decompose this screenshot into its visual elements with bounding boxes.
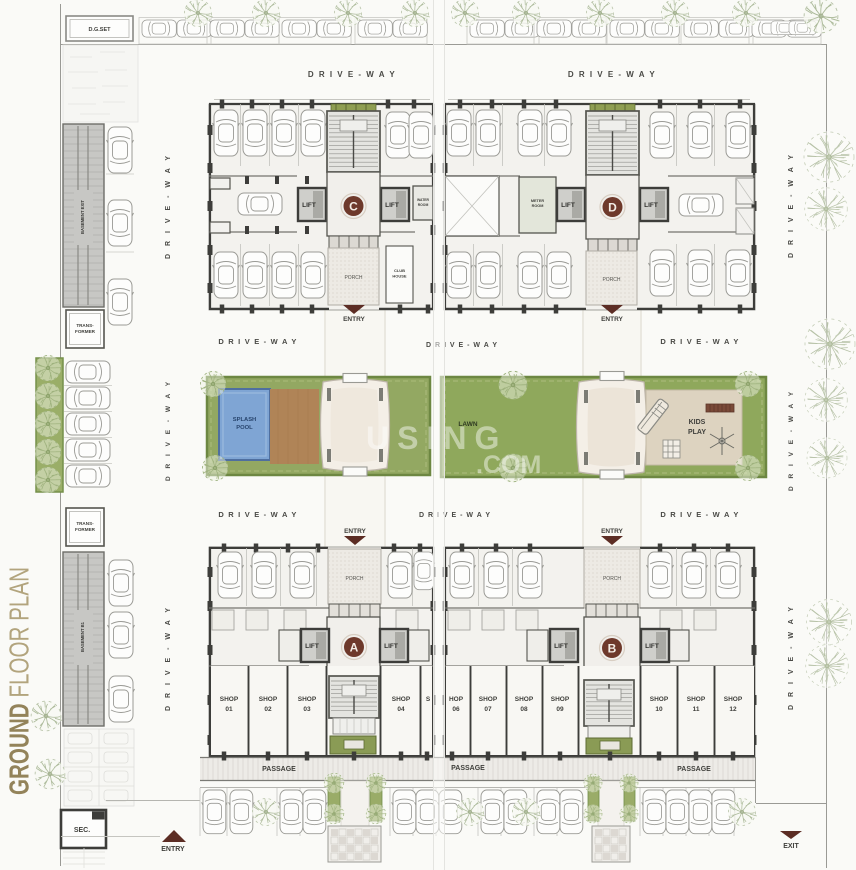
svg-text:D R I V E - W A Y: D R I V E - W A Y <box>788 389 795 491</box>
svg-text:ENTRY: ENTRY <box>161 846 185 853</box>
svg-text:SHOP: SHOP <box>298 696 317 703</box>
svg-text:D R I V E - W A Y: D R I V E - W A Y <box>788 152 795 258</box>
svg-text:BASEMENT EXIT: BASEMENT EXIT <box>80 200 85 234</box>
svg-text:HOP: HOP <box>449 696 464 703</box>
svg-text:D R I V E - W A Y: D R I V E - W A Y <box>165 605 172 711</box>
svg-text:KIDS: KIDS <box>689 419 706 426</box>
svg-text:SHOP: SHOP <box>551 696 570 703</box>
svg-text:ROOM: ROOM <box>532 204 544 208</box>
svg-text:PORCH: PORCH <box>603 576 621 582</box>
svg-text:D R I V E - W A Y: D R I V E - W A Y <box>660 510 739 519</box>
svg-text:SEC.: SEC. <box>74 827 90 834</box>
svg-text:PORCH: PORCH <box>602 277 620 283</box>
svg-text:D.G.SET: D.G.SET <box>88 27 111 33</box>
svg-text:A: A <box>350 640 359 654</box>
svg-text:EXIT: EXIT <box>783 843 799 850</box>
svg-text:SHOP: SHOP <box>687 696 706 703</box>
svg-text:SHOP: SHOP <box>479 696 498 703</box>
svg-text:PORCH: PORCH <box>344 275 362 281</box>
svg-text:PLAY: PLAY <box>688 429 706 436</box>
svg-text:ROOM: ROOM <box>418 203 429 207</box>
svg-text:FORMER: FORMER <box>75 527 96 532</box>
svg-text:06: 06 <box>452 706 460 713</box>
svg-text:07: 07 <box>484 706 492 713</box>
svg-text:ENTRY: ENTRY <box>601 316 623 323</box>
svg-text:D R I V E - W A Y: D R I V E - W A Y <box>308 70 396 79</box>
svg-text:BASEMENT B1: BASEMENT B1 <box>80 621 85 652</box>
svg-text:PASSAGE: PASSAGE <box>451 765 485 772</box>
svg-text:PASSAGE: PASSAGE <box>677 766 711 773</box>
svg-text:SHOP: SHOP <box>515 696 534 703</box>
svg-text:D R I V E - W A Y: D R I V E - W A Y <box>568 70 656 79</box>
svg-text:D R I V E - W A Y: D R I V E - W A Y <box>165 153 172 259</box>
svg-text:D R I V E - W A Y: D R I V E - W A Y <box>419 512 491 519</box>
svg-text:ENTRY: ENTRY <box>344 528 366 535</box>
svg-text:02: 02 <box>264 706 272 713</box>
svg-text:D R I V E - W A Y: D R I V E - W A Y <box>788 604 795 710</box>
svg-text:GROUND FLOOR PLAN: GROUND FLOOR PLAN <box>4 567 35 795</box>
svg-text:WATER: WATER <box>417 198 430 202</box>
svg-text:D R I V E - W A Y: D R I V E - W A Y <box>218 337 297 346</box>
svg-text:D R I V E - W A Y: D R I V E - W A Y <box>660 337 739 346</box>
svg-text:D: D <box>608 200 617 214</box>
svg-text:ENTRY: ENTRY <box>601 528 623 535</box>
svg-text:SHOP: SHOP <box>259 696 278 703</box>
svg-text:HOUSE: HOUSE <box>392 274 407 279</box>
svg-text:01: 01 <box>225 706 233 713</box>
svg-text:S: S <box>426 696 431 703</box>
svg-text:POOL: POOL <box>236 425 253 431</box>
svg-text:TRANS-: TRANS- <box>76 521 94 526</box>
svg-text:SPLASH: SPLASH <box>233 417 257 423</box>
svg-text:D R I V E - W A Y: D R I V E - W A Y <box>218 510 297 519</box>
svg-text:ENTRY: ENTRY <box>343 316 365 323</box>
svg-text:C: C <box>349 199 358 213</box>
svg-text:.COM: .COM <box>476 451 541 479</box>
svg-text:11: 11 <box>693 706 700 713</box>
svg-text:03: 03 <box>303 706 311 713</box>
svg-text:PORCH: PORCH <box>345 576 363 582</box>
svg-text:FORMER: FORMER <box>75 329 96 334</box>
svg-text:CLUB: CLUB <box>394 268 405 273</box>
svg-text:08: 08 <box>520 706 528 713</box>
svg-text:D R I V E - W A Y: D R I V E - W A Y <box>165 379 172 481</box>
svg-text:09: 09 <box>556 706 564 713</box>
svg-text:10: 10 <box>655 706 663 713</box>
svg-text:04: 04 <box>397 706 405 713</box>
svg-text:SHOP: SHOP <box>650 696 669 703</box>
svg-text:SHOP: SHOP <box>724 696 743 703</box>
svg-text:B: B <box>608 641 617 655</box>
svg-text:SHOP: SHOP <box>220 696 239 703</box>
svg-text:SHOP: SHOP <box>392 696 411 703</box>
svg-text:TRANS-: TRANS- <box>76 323 94 328</box>
svg-text:PASSAGE: PASSAGE <box>262 766 296 773</box>
svg-text:12: 12 <box>729 706 737 713</box>
svg-text:METER: METER <box>531 199 545 203</box>
